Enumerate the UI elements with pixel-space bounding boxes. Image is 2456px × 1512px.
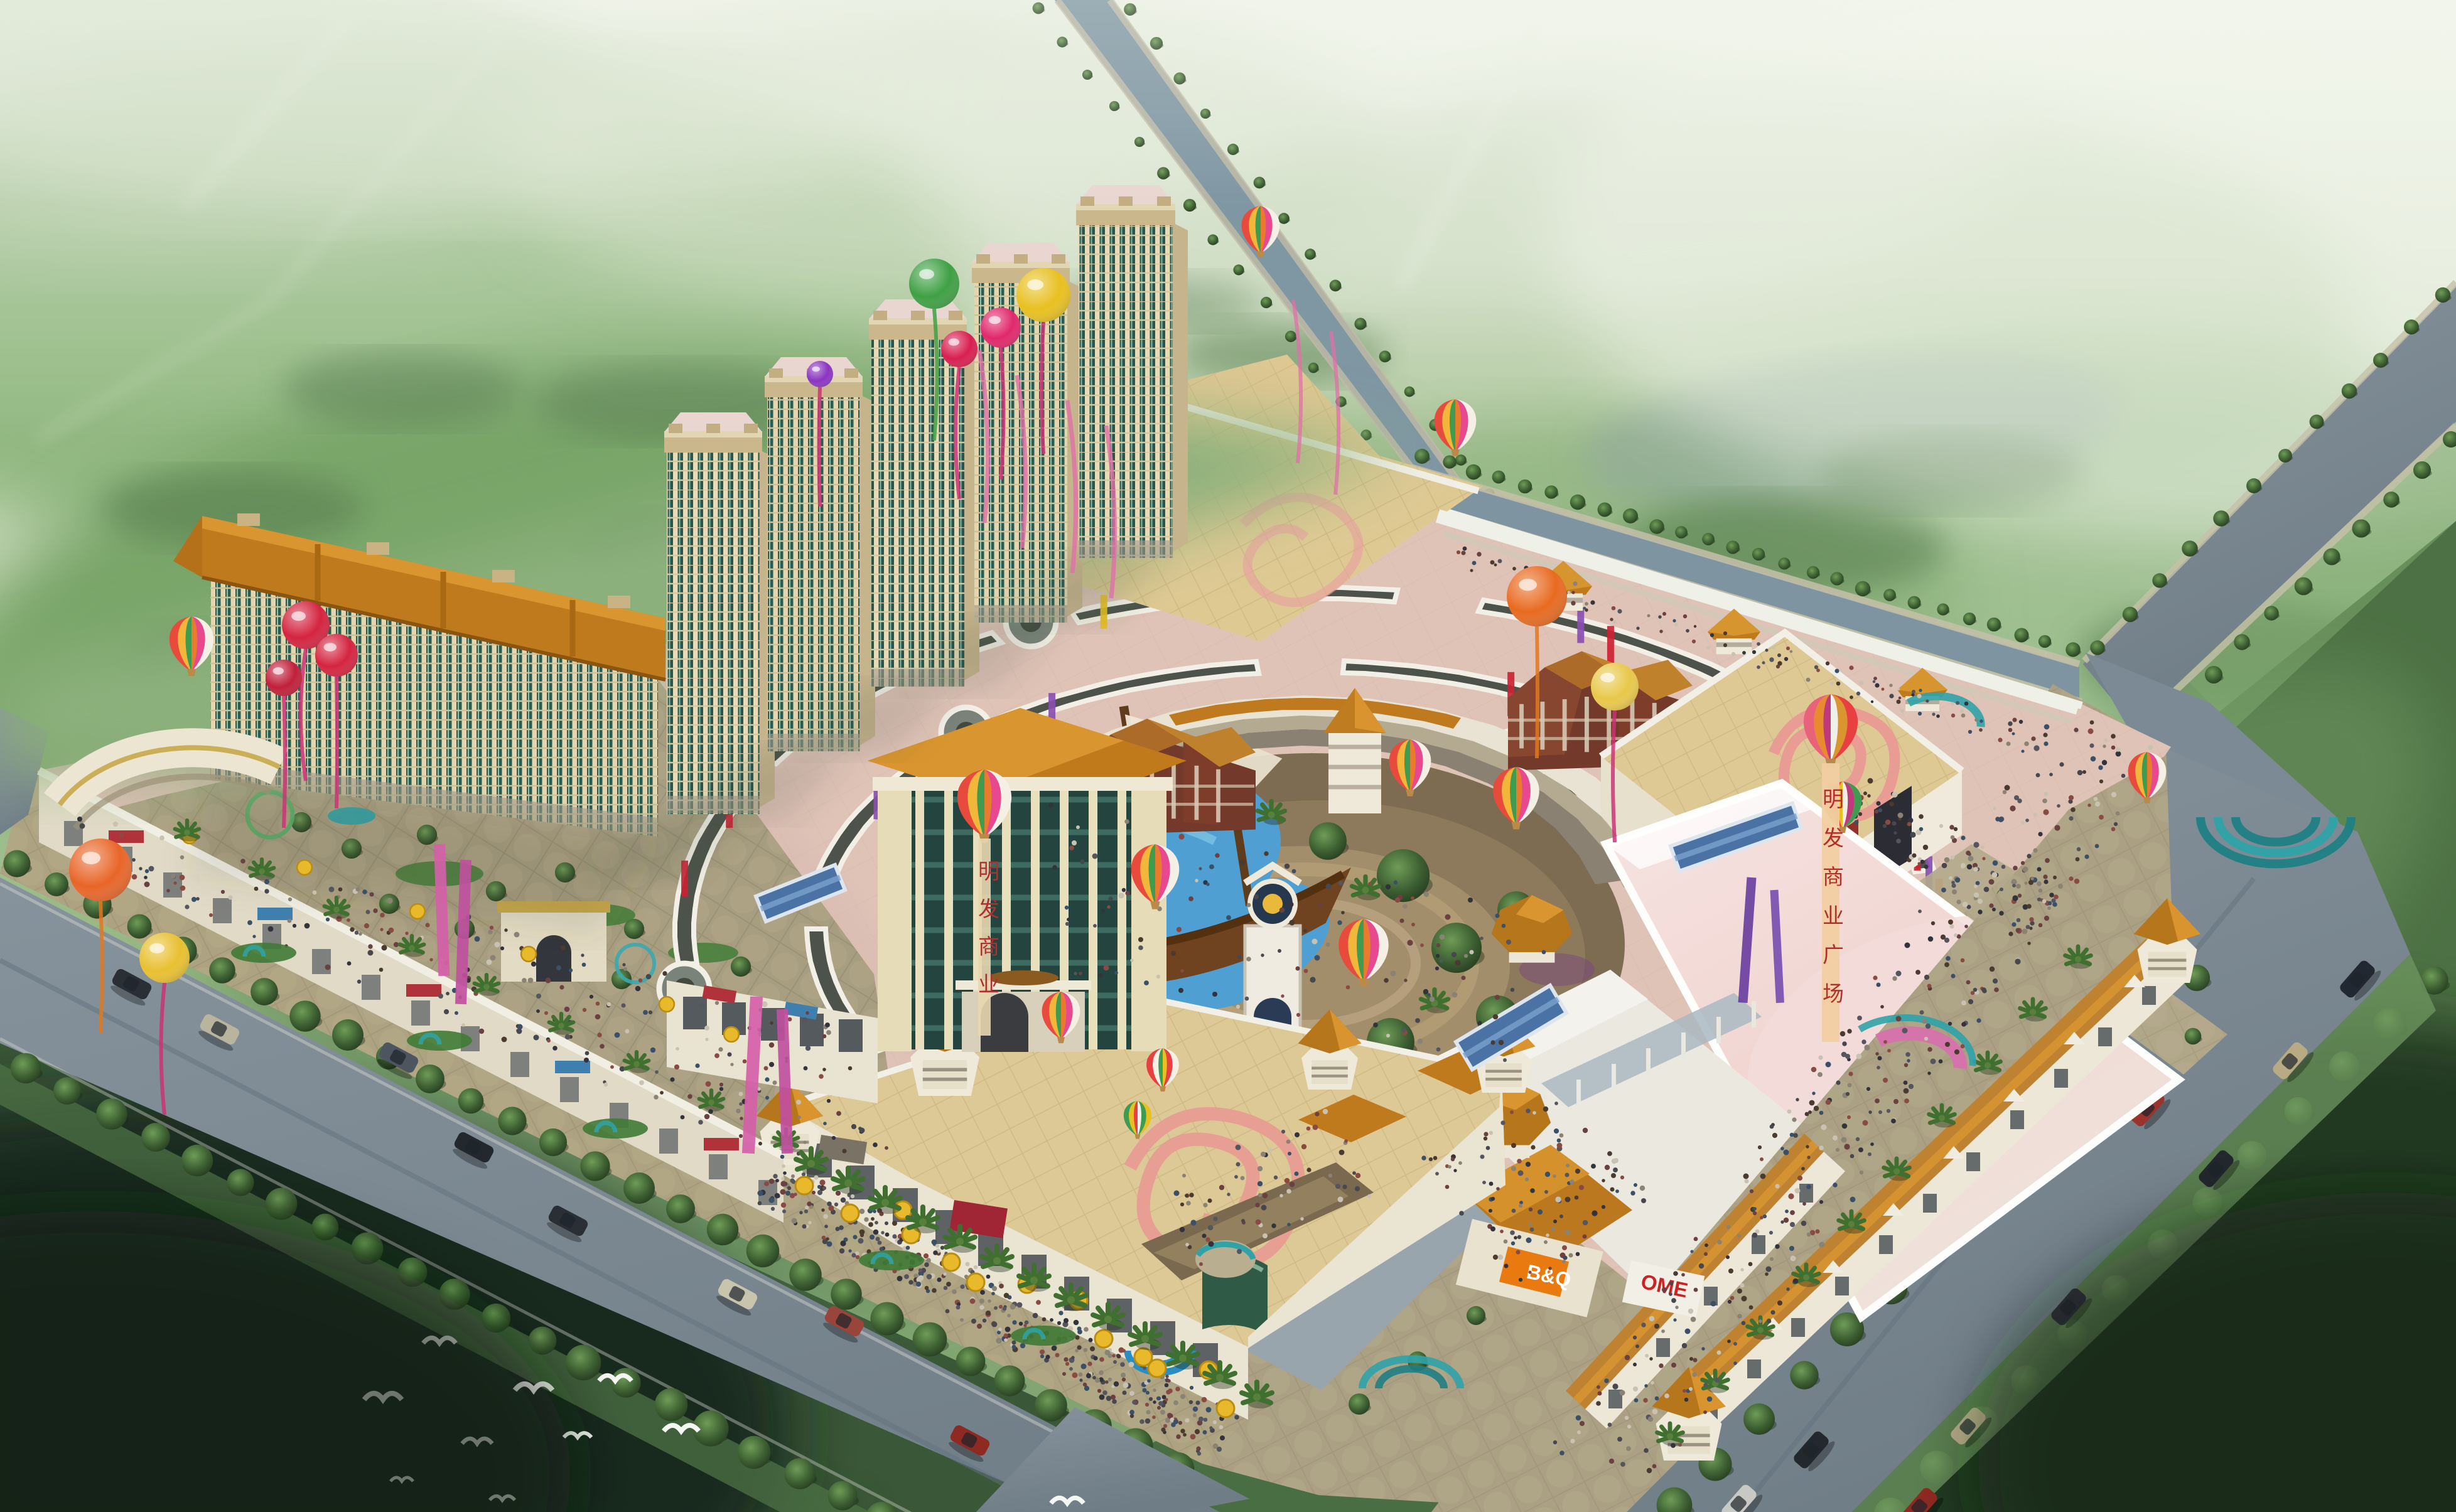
- svg-text:场: 场: [1823, 982, 1844, 1006]
- svg-text:业: 业: [1823, 904, 1844, 928]
- svg-text:商: 商: [978, 935, 999, 959]
- svg-text:商: 商: [1823, 866, 1844, 889]
- svg-text:业: 业: [978, 973, 999, 997]
- svg-text:明: 明: [978, 860, 999, 884]
- svg-text:发: 发: [1823, 827, 1844, 850]
- svg-text:发: 发: [978, 898, 999, 921]
- svg-text:广: 广: [1823, 943, 1844, 967]
- svg-text:明: 明: [1823, 788, 1844, 812]
